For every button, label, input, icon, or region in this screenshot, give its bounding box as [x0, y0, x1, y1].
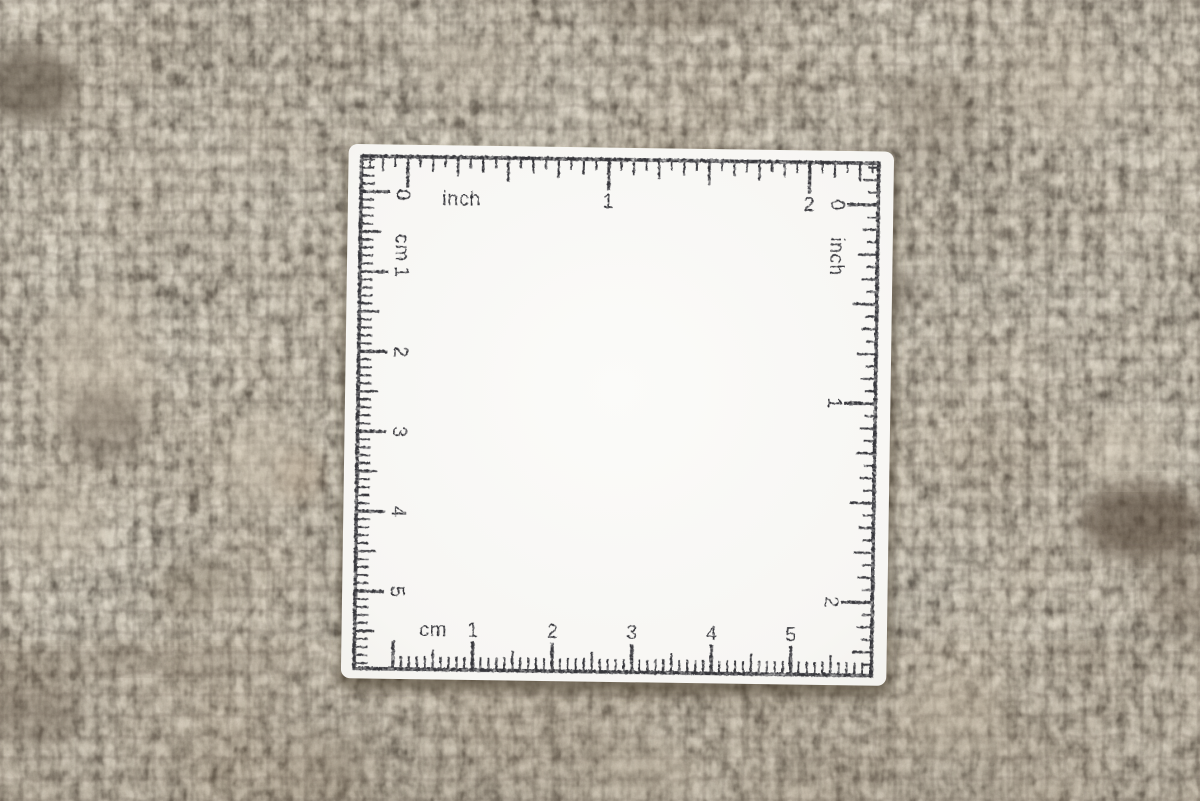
svg-text:5: 5: [785, 624, 797, 646]
svg-text:2: 2: [803, 194, 815, 216]
svg-text:3: 3: [626, 622, 638, 644]
svg-text:2: 2: [389, 346, 411, 358]
svg-text:4: 4: [387, 506, 409, 518]
svg-text:1: 1: [602, 191, 614, 213]
svg-text:inch: inch: [825, 237, 848, 276]
svg-text:1: 1: [823, 397, 845, 409]
svg-text:3: 3: [388, 426, 410, 438]
svg-text:2: 2: [546, 621, 558, 643]
svg-text:1: 1: [390, 266, 412, 278]
svg-text:cm: cm: [419, 619, 447, 641]
svg-text:1: 1: [467, 620, 479, 642]
svg-text:0: 0: [826, 199, 848, 211]
svg-text:cm: cm: [390, 234, 413, 262]
svg-text:0: 0: [391, 189, 413, 201]
svg-text:5: 5: [385, 586, 407, 598]
svg-text:4: 4: [706, 623, 718, 645]
svg-text:2: 2: [820, 596, 842, 608]
svg-text:inch: inch: [442, 188, 481, 210]
